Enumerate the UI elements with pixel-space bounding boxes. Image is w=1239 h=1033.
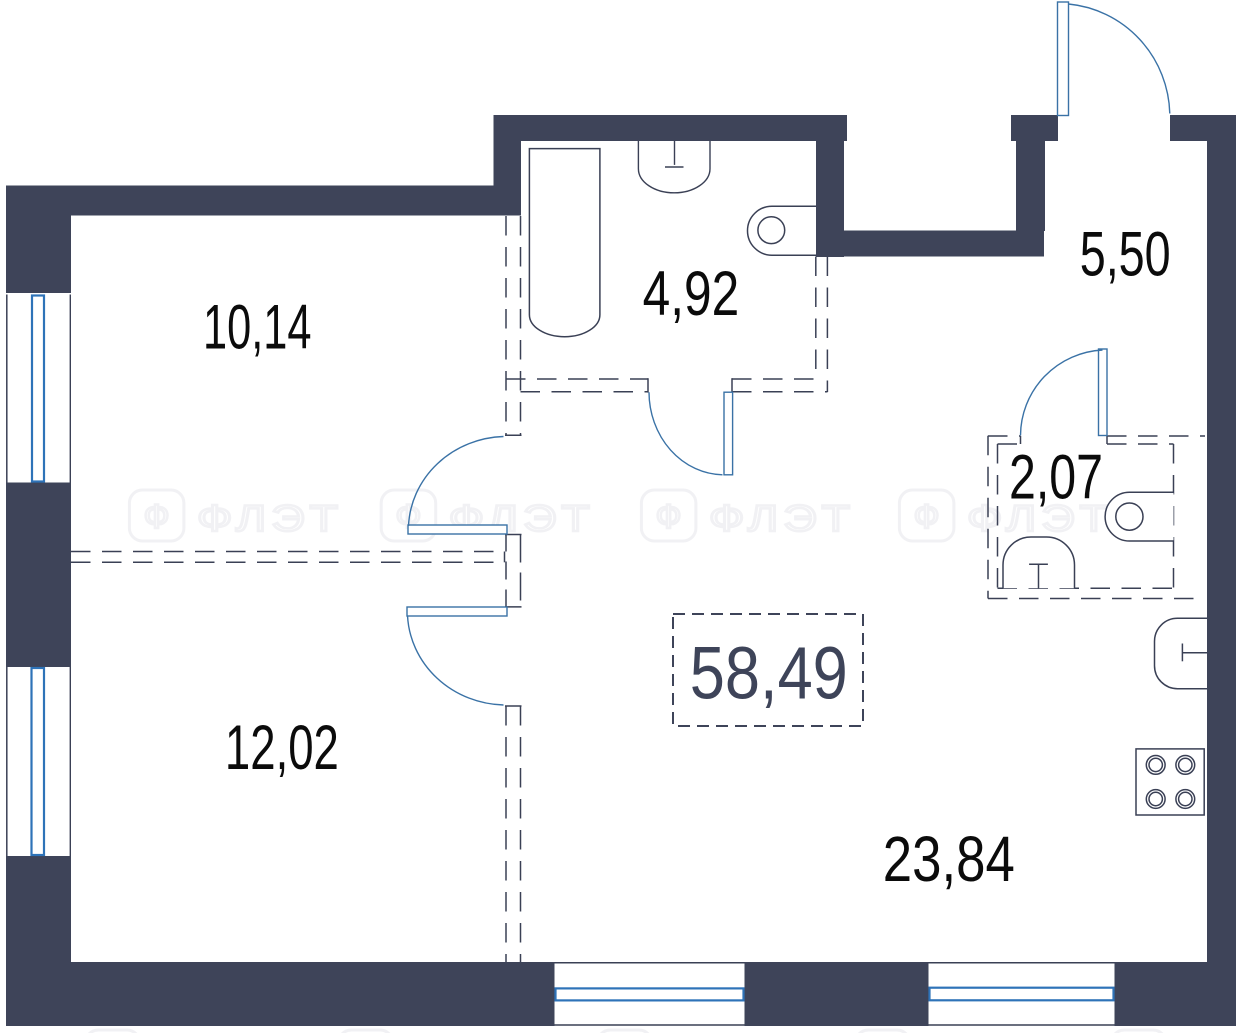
svg-text:12,02: 12,02 bbox=[225, 713, 339, 783]
svg-text:23,84: 23,84 bbox=[883, 823, 1015, 895]
svg-text:Ф: Ф bbox=[144, 498, 170, 536]
svg-text:58,49: 58,49 bbox=[690, 631, 848, 714]
svg-text:2,07: 2,07 bbox=[1009, 442, 1103, 512]
svg-text:4,92: 4,92 bbox=[643, 259, 740, 329]
svg-text:10,14: 10,14 bbox=[203, 293, 312, 363]
svg-text:5,50: 5,50 bbox=[1080, 220, 1171, 290]
svg-text:ФЛЭТ: ФЛЭТ bbox=[197, 498, 343, 539]
